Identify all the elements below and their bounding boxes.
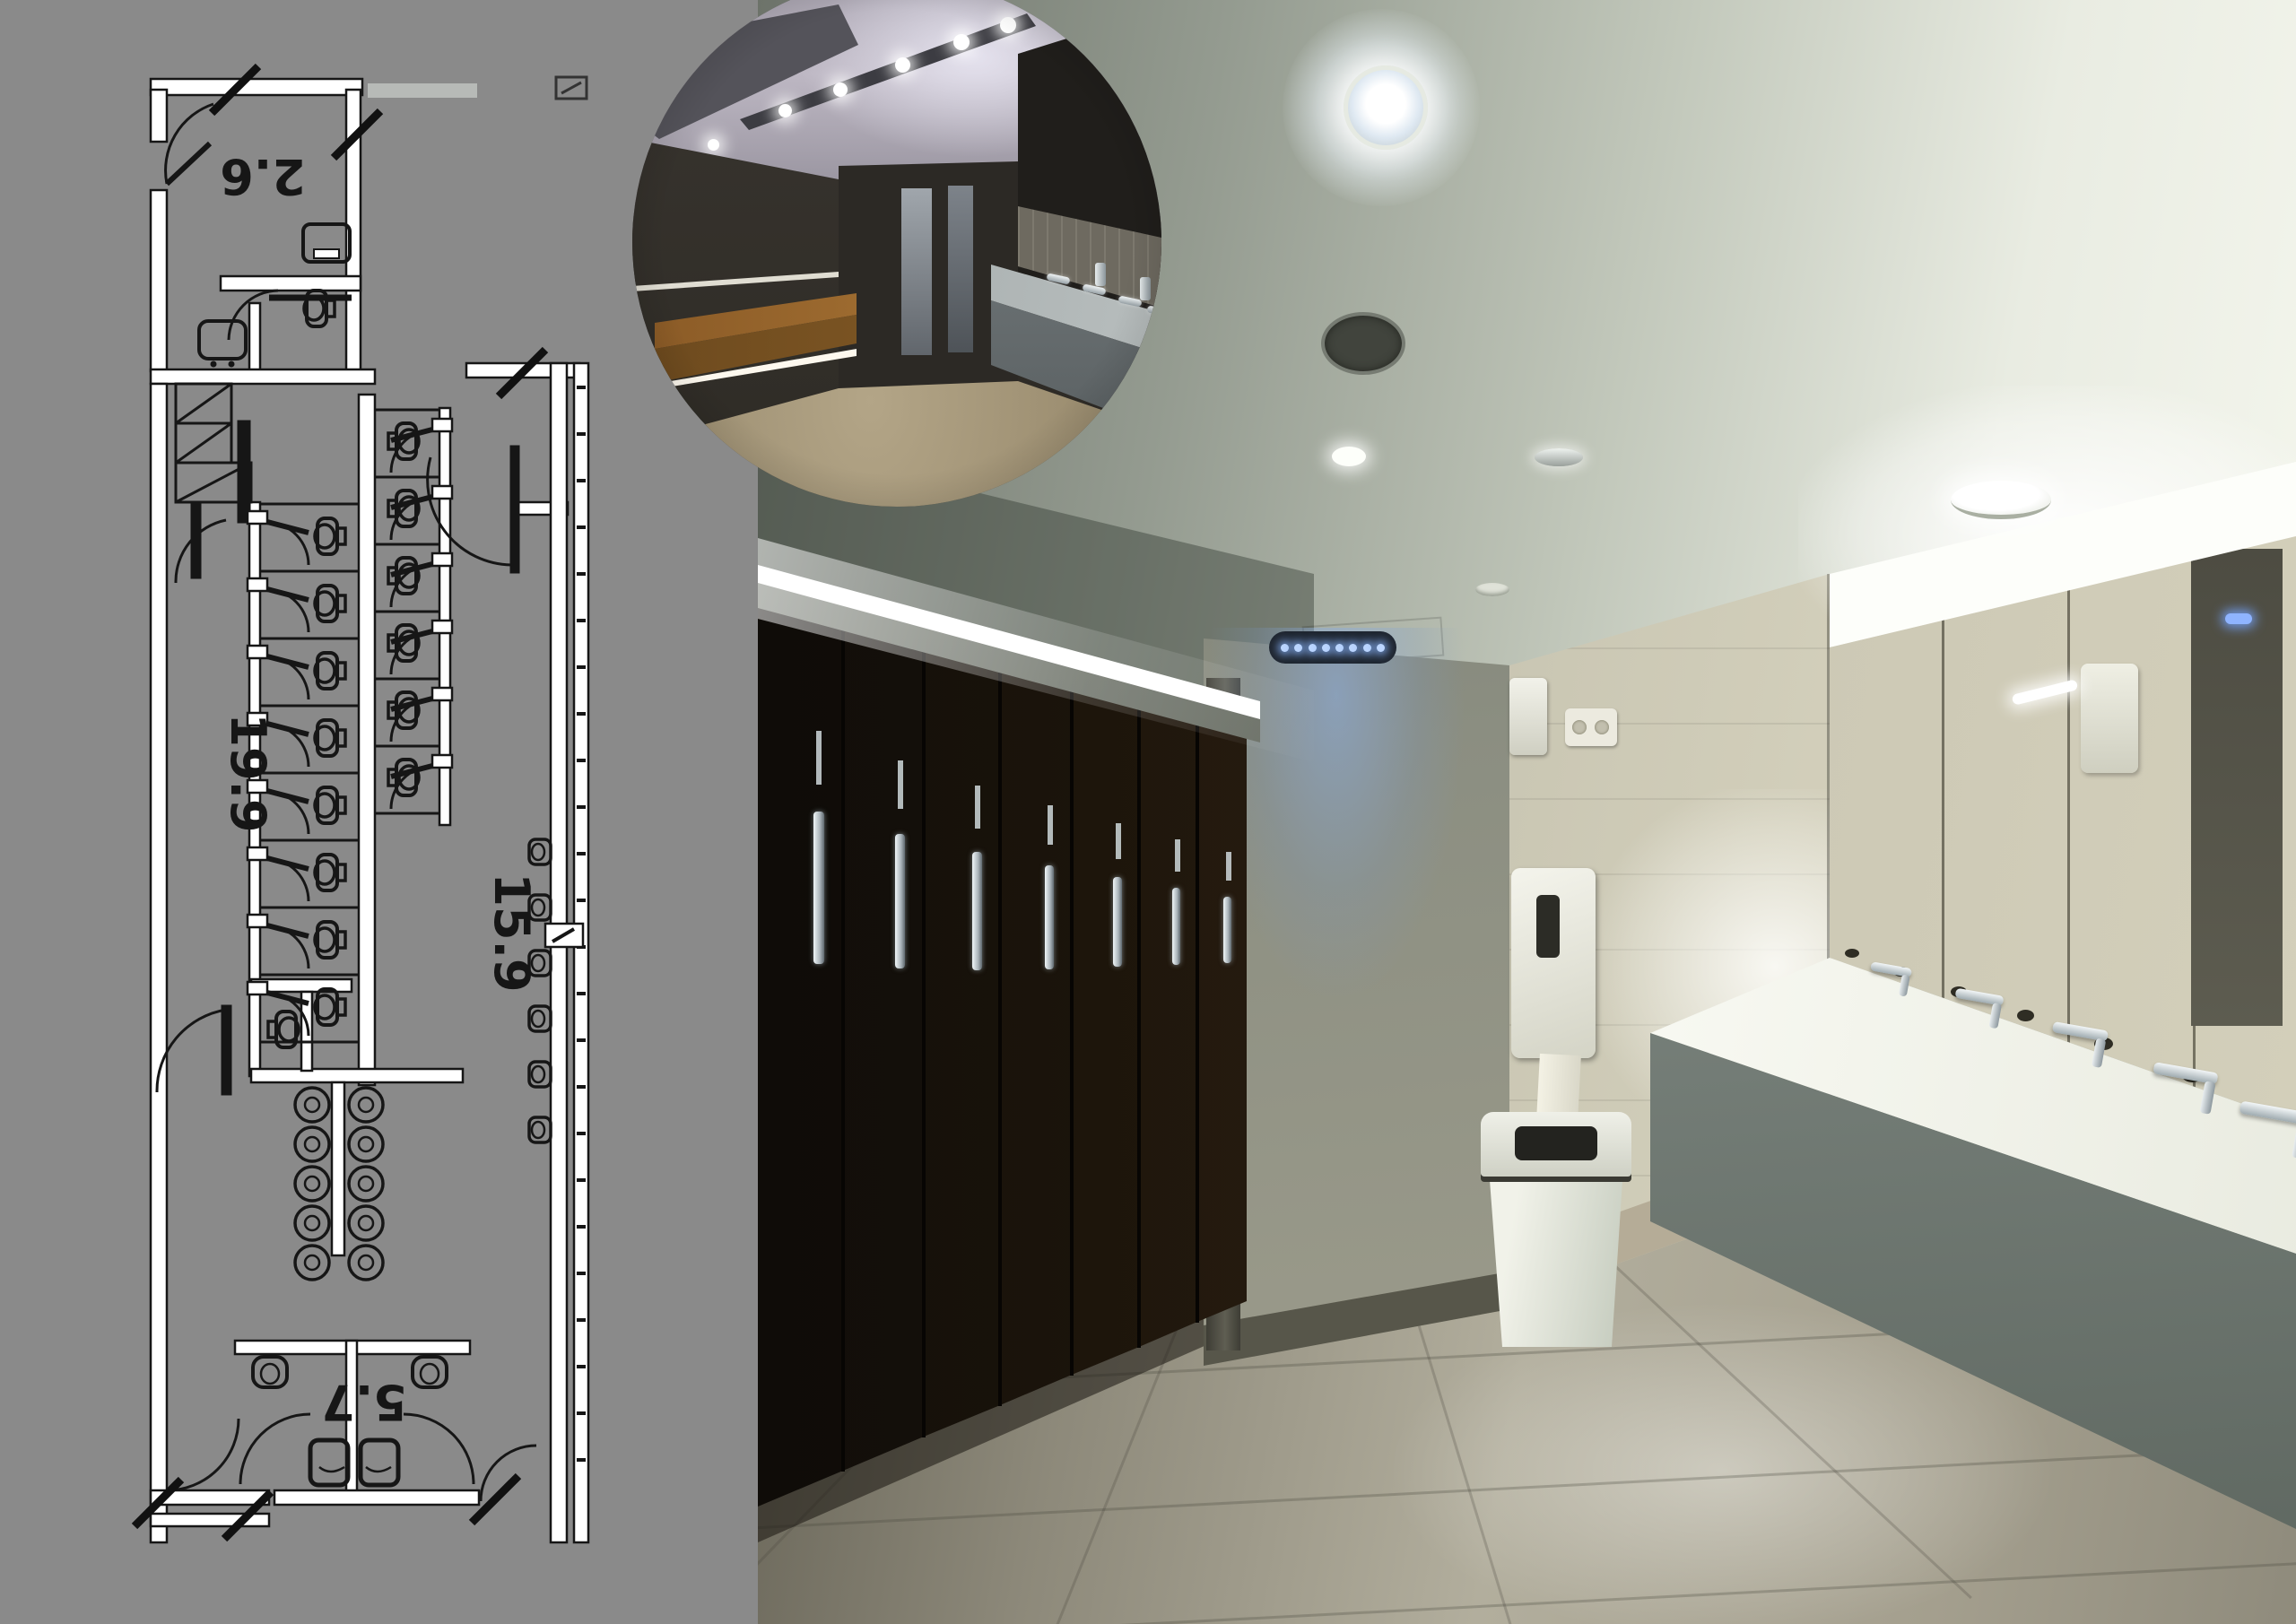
door-handle <box>1113 877 1122 967</box>
design-board: 2.6 19.9 15.9 5.7 <box>0 0 2296 1624</box>
door-handle <box>813 812 824 964</box>
trim-bar <box>368 83 477 98</box>
inset-circle-photo <box>632 0 1161 507</box>
mirror-reflection-dispenser <box>2081 664 2138 773</box>
door-lock-indicator <box>1226 852 1231 881</box>
power-socket <box>1565 708 1617 746</box>
dim-right-corridor: 15.9 <box>483 873 540 992</box>
plan-walls <box>151 79 588 1542</box>
dim-bottom-room: 5.7 <box>321 1374 407 1430</box>
recessed-light <box>1332 447 1366 466</box>
counter-drain <box>2017 1010 2034 1021</box>
door-lock-indicator <box>1048 805 1053 845</box>
door-lock-indicator <box>1116 823 1121 859</box>
door-handle <box>1172 888 1180 965</box>
paper-towel-dispenser <box>1511 868 1596 1058</box>
door-lock-indicator <box>898 760 903 809</box>
smoke-detector <box>1475 583 1509 596</box>
faucet <box>2046 1021 2109 1077</box>
stair-hatch <box>176 384 251 522</box>
recessed-light <box>1535 448 1583 466</box>
blue-led-light <box>1269 631 1396 664</box>
door-lock-indicator <box>1175 839 1180 872</box>
dim-top-room: 2.6 <box>220 148 306 204</box>
faucet <box>1865 961 1912 1003</box>
trash-bin-lid <box>1481 1112 1631 1177</box>
dispenser-slot <box>1536 895 1560 958</box>
inset-vignette <box>632 0 1161 507</box>
door-lock-indicator <box>975 786 980 829</box>
counter-drain <box>1845 949 1859 958</box>
door-lock-indicator <box>816 731 822 785</box>
skylight-light <box>1344 65 1428 150</box>
faucet <box>2146 1062 2219 1125</box>
door-handle <box>972 852 982 970</box>
north-symbol <box>556 77 587 99</box>
soap-dispenser <box>1509 678 1547 755</box>
door-handle <box>895 834 905 968</box>
mirror-reflection-blue-light <box>2225 613 2252 624</box>
ceiling-vent <box>1321 312 1405 375</box>
recessed-light <box>1951 481 2051 519</box>
sink-icon <box>199 321 246 368</box>
door-handle <box>1045 865 1054 969</box>
faucet <box>1949 988 2004 1038</box>
dim-left-corridor: 19.9 <box>220 713 276 832</box>
door-handle <box>1223 897 1231 963</box>
trash-bin-body <box>1486 1180 1626 1347</box>
trash-bin-opening <box>1515 1126 1597 1160</box>
